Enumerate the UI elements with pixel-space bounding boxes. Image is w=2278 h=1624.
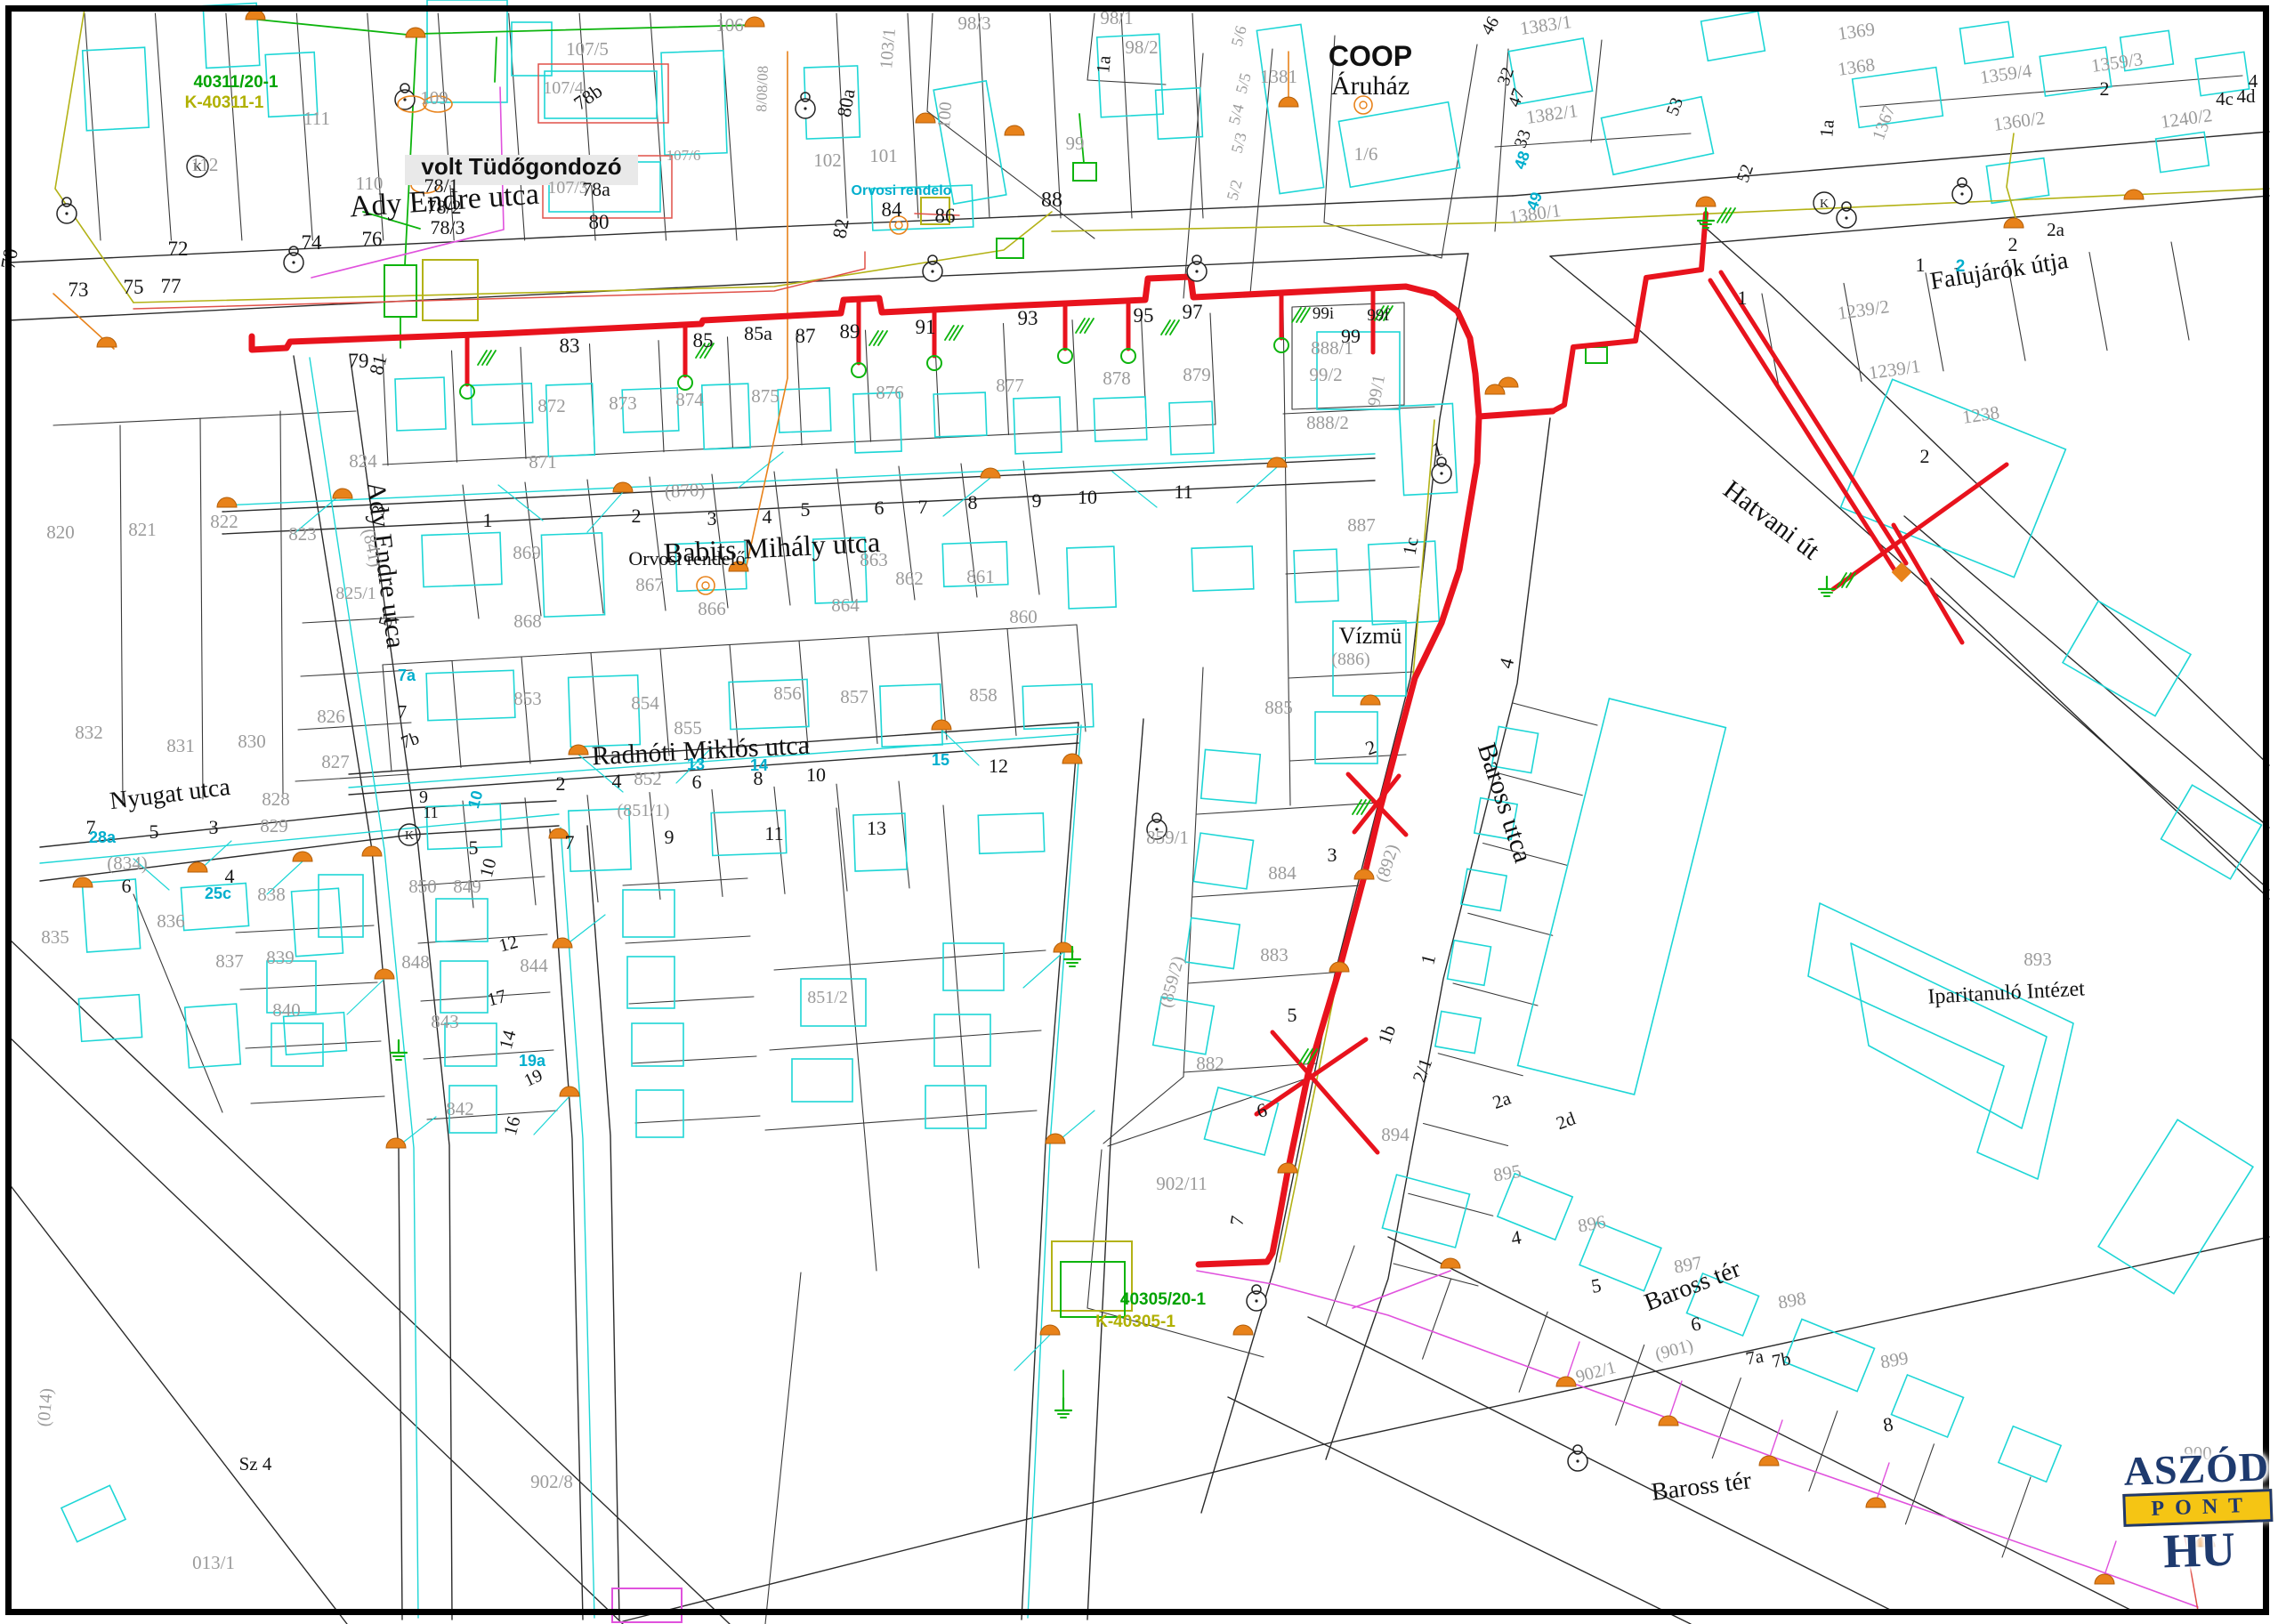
- logo-line-hu: HU: [2120, 1523, 2278, 1577]
- map-border: [5, 5, 2269, 1615]
- logo-line-aszod: ASZÓD: [2118, 1446, 2275, 1492]
- aszod-pont-hu-logo: ASZÓD PONT HU: [2118, 1446, 2278, 1577]
- logo-bar-pont: PONT: [2122, 1489, 2273, 1527]
- map-viewport: KKKAdy Endre utcaAdy Endre utcaBabits Mi…: [0, 0, 2278, 1624]
